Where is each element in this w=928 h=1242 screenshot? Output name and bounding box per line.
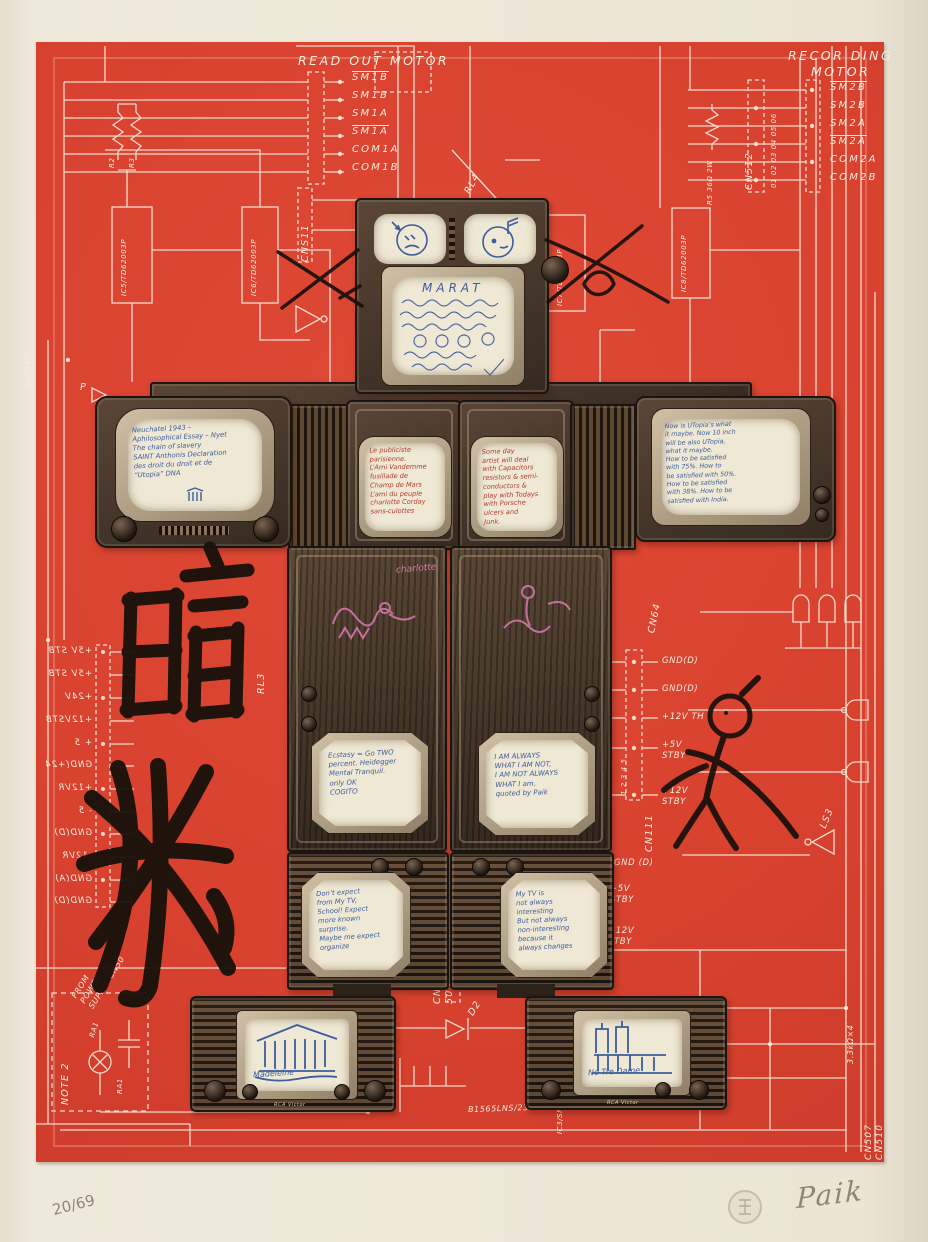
head-screen: MARAT [392, 277, 514, 375]
left-knee-screen: Ecstasy = Go TWO percent. Heidegger Ment… [319, 740, 421, 826]
head-left-eye-screen [374, 214, 446, 264]
right-arm-knob [813, 486, 831, 504]
torso-knob [584, 686, 600, 702]
resistor-label-r2: R2 [108, 157, 117, 168]
head-side-knob [541, 256, 569, 284]
chest-left-bezel: Le publiciste parisienne. L’Ami Vandemme… [358, 436, 452, 538]
cn507-cn510-label: CN507 CN510 [864, 1096, 887, 1160]
left-shin-text: Don’t expect from My TV, School! Expect … [316, 886, 381, 953]
tv-brand-text: RCA Victor [607, 1100, 639, 1106]
resistor-label-r5: R5 36Ω 2W [706, 160, 715, 205]
right-foot-tv: No Tre Dame RCA Victor [525, 996, 727, 1110]
chop-stamp [728, 1190, 762, 1224]
head-vent [449, 218, 455, 260]
pin-label: SM2A [830, 136, 867, 149]
cn64-pin-label: GND(D) [662, 684, 698, 695]
ra1-cap-label: RA1 [116, 1078, 125, 1094]
cn512-pin-numbers: 01 02 03 04 05 06 [770, 113, 779, 188]
left-knee-text: Ecstasy = Go TWO percent. Heidegger Ment… [328, 748, 398, 798]
chest-tv-left: Le publiciste parisienne. L’Ami Vandemme… [346, 400, 462, 550]
left-shin-tv: Don’t expect from My TV, School! Expect … [287, 852, 449, 990]
chest-grille-right [570, 404, 636, 550]
right-shin-text: My TV is not always interesting But not … [515, 888, 572, 954]
foot-knob [204, 1080, 226, 1102]
chest-left-screen: Le publiciste parisienne. L’Ami Vandemme… [365, 443, 445, 531]
ic5-label: IC5/TD62003P [120, 239, 129, 296]
left-knee-bezel: Ecstasy = Go TWO percent. Heidegger Ment… [311, 732, 429, 834]
rail-label-mirrored: GND(D) [16, 828, 92, 838]
ic8-label: IC8/TD62003P [680, 235, 689, 292]
rail-label-mirrored: GND(D) [16, 896, 92, 906]
resistor-bottom-label: 3.3kΩ×4 [846, 1025, 856, 1064]
head-tv: MARAT [355, 198, 549, 394]
rail-label-mirrored: +12VR [16, 783, 92, 793]
pin-label: SM1B [352, 90, 389, 103]
shin-knob [405, 858, 423, 876]
foot-knob [689, 1080, 709, 1100]
cn64-pin-label: GND(D) [662, 656, 698, 667]
right-shin-screen: My TV is not always interesting But not … [508, 880, 600, 970]
chest-grille-left [288, 404, 350, 550]
cn64-pin-label: +12V STBY [662, 786, 688, 807]
chest-right-screen: Some day artist will deal with Capacitor… [477, 443, 557, 531]
tv-brand-text: RCA Victor [274, 1102, 306, 1108]
rail-label-mirrored: GND(A) [16, 874, 92, 884]
pin-label: COM2B [830, 172, 878, 185]
right-knee-screen: I AM ALWAYS WHAT I AM NOT, I AM NOT ALWA… [486, 740, 588, 828]
right-arm-bezel: Now is UTopia’s what it maybe. Now 10 in… [651, 408, 811, 526]
pin-label: SM2B [830, 82, 867, 95]
pin-label: COM2A [830, 154, 878, 167]
rail-label-mirrored: + 5 [16, 738, 92, 748]
pink-doodle-right [486, 570, 606, 648]
chest-right-text: Some day artist will deal with Capacitor… [482, 446, 540, 526]
relay-label-rl3: RL3 [256, 672, 268, 694]
left-arm-knob [253, 516, 279, 542]
resistor-label-r3: R3 [128, 157, 137, 168]
artwork-print: READ OUT MOTOR SM1B SM1B SM1A SM1A COM1A… [0, 0, 928, 1242]
left-arm-text: Neuchatel 1943 – Aphilosophical Essay – … [132, 422, 229, 481]
cn64-pin-numbers: 1 2 3 4 5 [620, 758, 629, 795]
torso-knob [584, 716, 600, 732]
pin-label: COM1A [352, 144, 400, 157]
pin-label: SM1A [352, 108, 389, 121]
madeleine-church-drawing [245, 1019, 349, 1091]
rail-label-mirrored: +24V [16, 692, 92, 702]
foot-knob [364, 1080, 386, 1102]
note-face-doodle [464, 214, 536, 264]
connector-label-cn111: CN111 [644, 814, 656, 852]
chest-tv-right: Some day artist will deal with Capacitor… [458, 400, 574, 550]
right-arm-screen: Now is UTopia’s what it maybe. Now 10 in… [662, 419, 800, 515]
left-shin-bezel: Don’t expect from My TV, School! Expect … [301, 872, 411, 978]
note2-label: NOTE 2 [60, 1062, 72, 1105]
right-shin-bezel: My TV is not always interesting But not … [500, 872, 608, 978]
connector-label-cn511: CNS11 [300, 224, 312, 262]
pin-label: SM1B [352, 72, 389, 85]
pin-label: SM2A [830, 118, 867, 131]
torso-knob [301, 686, 317, 702]
rail-label-mirrored: - 5 [16, 806, 92, 816]
head-screen-bezel: MARAT [381, 266, 525, 386]
pink-doodle-left [315, 572, 435, 650]
torso-left-panel: Ecstasy = Go TWO percent. Heidegger Ment… [287, 546, 447, 852]
pin-label: SM2B [830, 100, 867, 113]
cn64-pin-label: +5V STBY [662, 740, 686, 761]
rail-label-mirrored: +12VSTB [16, 715, 92, 725]
rail-label-mirrored: -12VR [16, 851, 92, 861]
edition-number: 20/69 [50, 1191, 96, 1219]
foot-knob [242, 1084, 258, 1100]
chest-right-bezel: Some day artist will deal with Capacitor… [470, 436, 564, 538]
marat-title: MARAT [422, 281, 484, 295]
cn64-pin-label: +12V TH [662, 712, 704, 723]
recording-motor-title: RECOR DING MOTOR [788, 48, 893, 79]
artist-signature: Paik [796, 1174, 864, 1216]
left-arm-dial [159, 526, 229, 535]
left-arm-screen: Neuchatel 1943 – Aphilosophical Essay – … [128, 419, 262, 511]
foot-knob [541, 1080, 561, 1100]
right-lower-label: GND (D) [614, 858, 654, 869]
right-knee-text: I AM ALWAYS WHAT I AM NOT, I AM NOT ALWA… [494, 751, 559, 799]
plus24v-label: +24V [22, 357, 34, 388]
right-arm-tv: Now is UTopia’s what it maybe. Now 10 in… [635, 396, 836, 542]
head-screen-handwriting-scribble [392, 295, 514, 393]
pin-label: SM1A [352, 126, 389, 139]
rail-label-mirrored: +5V STB [16, 669, 92, 679]
chop-stamp-glyph [730, 1192, 760, 1222]
left-shin-screen: Don’t expect from My TV, School! Expect … [309, 880, 403, 970]
left-foot-screen: Madeleine [245, 1019, 349, 1091]
pin-label: COM1B [352, 162, 400, 175]
right-shin-tv: My TV is not always interesting But not … [450, 852, 614, 990]
foot-knob [655, 1082, 671, 1098]
ic6-label: IC6/TD62003P [250, 239, 259, 296]
rail-label-mirrored: GND(+24 [16, 760, 92, 770]
left-arm-knob [111, 516, 137, 542]
p-label: P [80, 382, 87, 394]
left-foot-tv: Madeleine RCA Victor [190, 996, 396, 1112]
frown-face-doodle [374, 214, 446, 264]
right-foot-screen: No Tre Dame [582, 1019, 682, 1087]
right-arm-knob [815, 508, 829, 522]
right-arm-text: Now is UTopia’s what it maybe. Now 10 in… [665, 421, 739, 506]
right-foot-bezel: No Tre Dame [573, 1010, 691, 1096]
left-arm-radio: Neuchatel 1943 – Aphilosophical Essay – … [95, 396, 292, 548]
rail-label-mirrored: +5V STB [16, 646, 92, 656]
foot-knob [334, 1084, 350, 1100]
shin-knob [472, 858, 490, 876]
head-right-eye-screen [464, 214, 536, 264]
chest-left-text: Le publiciste parisienne. L’Ami Vandemme… [369, 446, 427, 517]
small-building-doodle [186, 487, 204, 503]
connector-label-cn512: CN512 [744, 152, 756, 190]
left-arm-bezel: Neuchatel 1943 – Aphilosophical Essay – … [115, 408, 275, 522]
right-knee-bezel: I AM ALWAYS WHAT I AM NOT, I AM NOT ALWA… [478, 732, 596, 836]
torso-knob [301, 716, 317, 732]
readout-motor-title: READ OUT MOTOR [298, 53, 449, 69]
torso-right-panel: I AM ALWAYS WHAT I AM NOT, I AM NOT ALWA… [450, 546, 612, 852]
